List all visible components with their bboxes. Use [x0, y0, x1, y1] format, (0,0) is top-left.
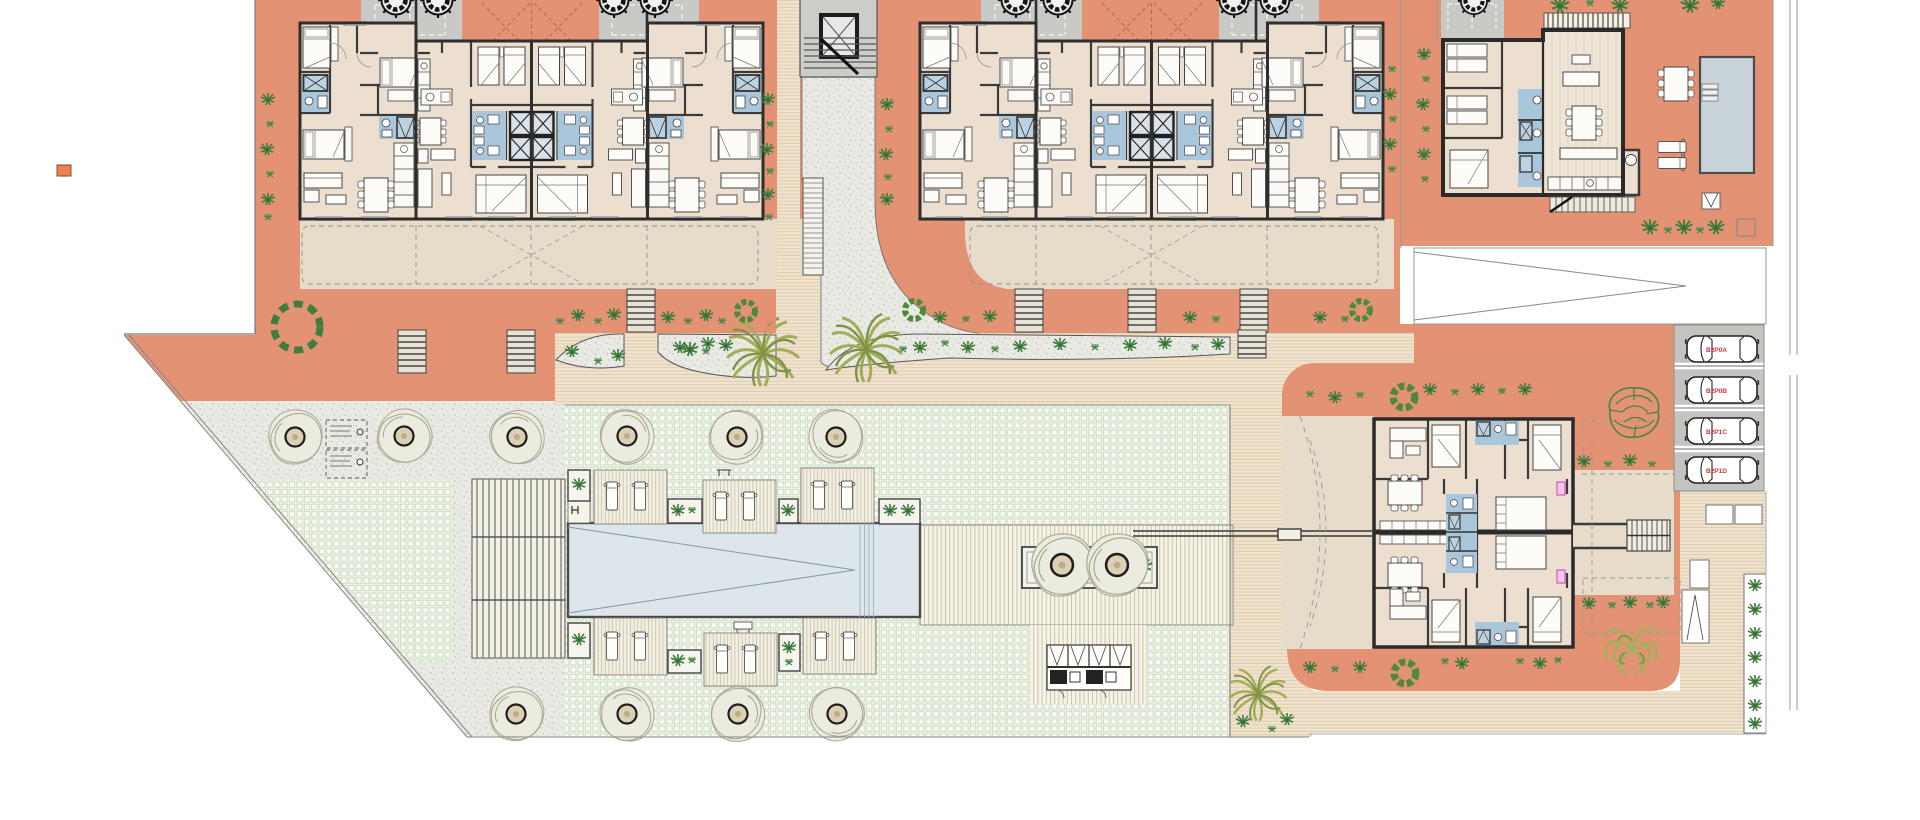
svg-text:B2P0A: B2P0A [1706, 347, 1727, 354]
svg-text:B2P1D: B2P1D [1706, 468, 1727, 475]
svg-text:B2P1C: B2P1C [1706, 429, 1727, 436]
svg-text:B2P0B: B2P0B [1706, 388, 1727, 395]
